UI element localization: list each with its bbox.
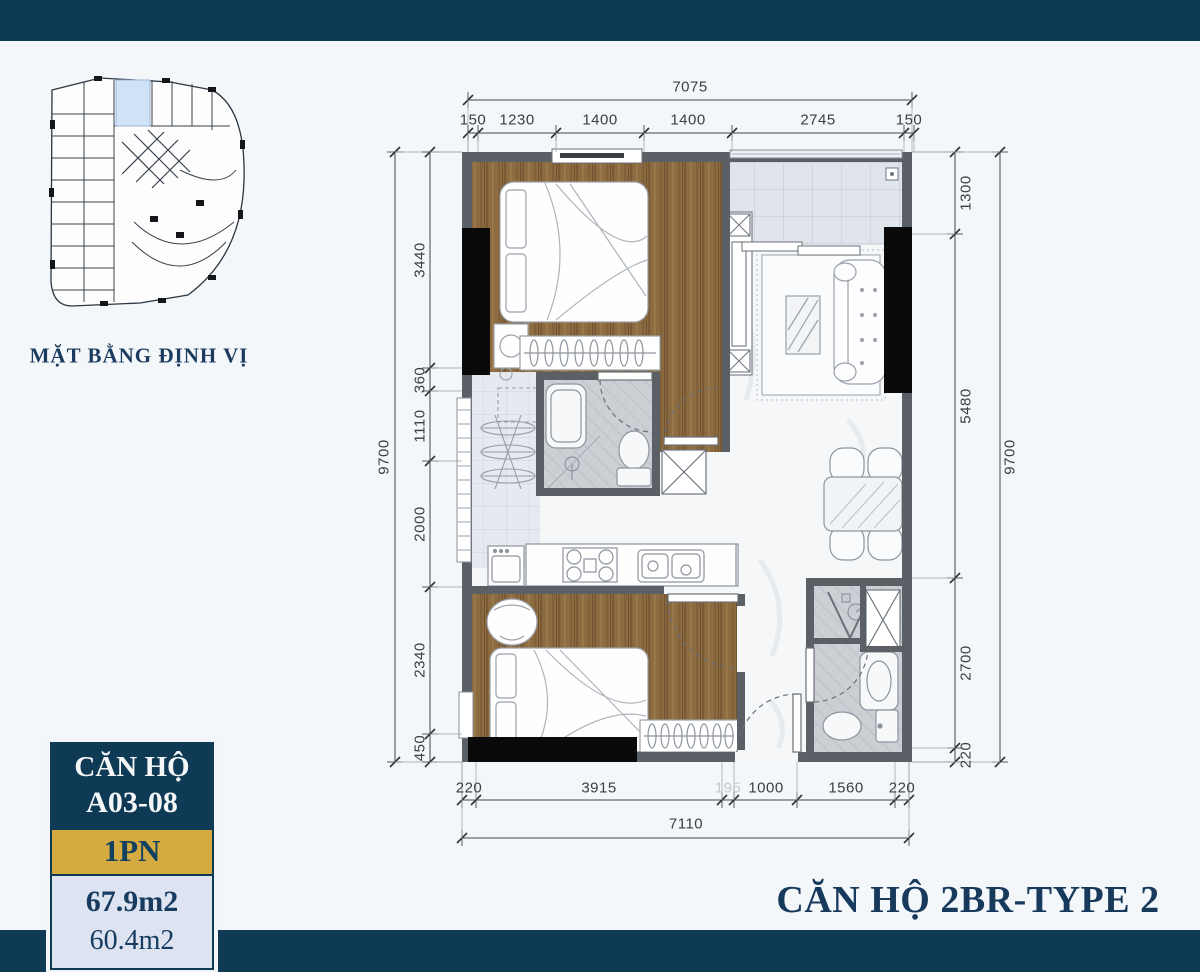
dim-left: 2340 (412, 642, 429, 677)
window-bedroom2 (459, 692, 473, 738)
toilet-1 (619, 431, 649, 469)
entry-door-leaf (793, 694, 801, 752)
dim-bottom: 1560 (828, 780, 863, 797)
unit-title: CĂN HỘ (52, 750, 212, 785)
unit-info-header: CĂN HỘ A03-08 (52, 744, 212, 828)
dim-bottom: 1000 (748, 780, 783, 797)
dim-top: 2745 (800, 112, 835, 129)
dim-top: 150 (460, 112, 487, 129)
dim-bottom: 195 (715, 780, 742, 797)
dim-left: 2000 (412, 506, 429, 541)
unit-type-badge: 1PN (52, 828, 212, 876)
unit-info-card: CĂN HỘ A03-08 1PN 67.9m2 60.4m2 (50, 742, 214, 970)
kitchen-counter (488, 544, 738, 586)
laundry-floor (472, 372, 540, 568)
unit-areas: 67.9m2 60.4m2 (52, 876, 212, 968)
unit-code: A03-08 (52, 785, 212, 821)
plan-title: CĂN HỘ 2BR-TYPE 2 (776, 878, 1159, 922)
dim-right: 2700 (958, 645, 975, 680)
dining-set (824, 448, 902, 560)
dim-bottom: 3915 (581, 780, 616, 797)
dim-left-total: 9700 (376, 439, 393, 474)
dim-top: 1230 (499, 112, 534, 129)
dim-bottom: 220 (889, 780, 916, 797)
dim-right: 1300 (958, 175, 975, 210)
dim-right-total: 9700 (1002, 439, 1019, 474)
dim-top: 1400 (670, 112, 705, 129)
dim-top: 1400 (582, 112, 617, 129)
balcony-details (886, 168, 898, 180)
armchair (487, 599, 537, 645)
dim-left: 450 (412, 735, 429, 762)
dim-left: 1110 (412, 409, 429, 442)
toilet-2 (823, 712, 861, 740)
unit-area-carpet: 60.4m2 (52, 922, 212, 960)
corridor-floor (660, 340, 722, 452)
dim-top: 150 (896, 112, 923, 129)
dim-right: 5480 (958, 388, 975, 423)
page: MẶT BẰNG ĐỊNH VỊ (0, 0, 1200, 972)
balcony-floor (730, 162, 902, 245)
dim-top-total: 7075 (672, 79, 707, 96)
bedroom1-furniture (494, 182, 660, 370)
dim-bottom-total: 7110 (669, 816, 703, 833)
living-room-furniture (757, 250, 886, 400)
dim-left: 360 (412, 367, 429, 394)
site-plan-label: MẶT BẰNG ĐỊNH VỊ (30, 344, 249, 369)
unit-area-gross: 67.9m2 (52, 882, 212, 923)
dim-left: 3440 (412, 242, 429, 277)
dim-right: 220 (958, 742, 975, 769)
entry-opening (735, 750, 798, 764)
dim-bottom: 220 (456, 780, 483, 797)
